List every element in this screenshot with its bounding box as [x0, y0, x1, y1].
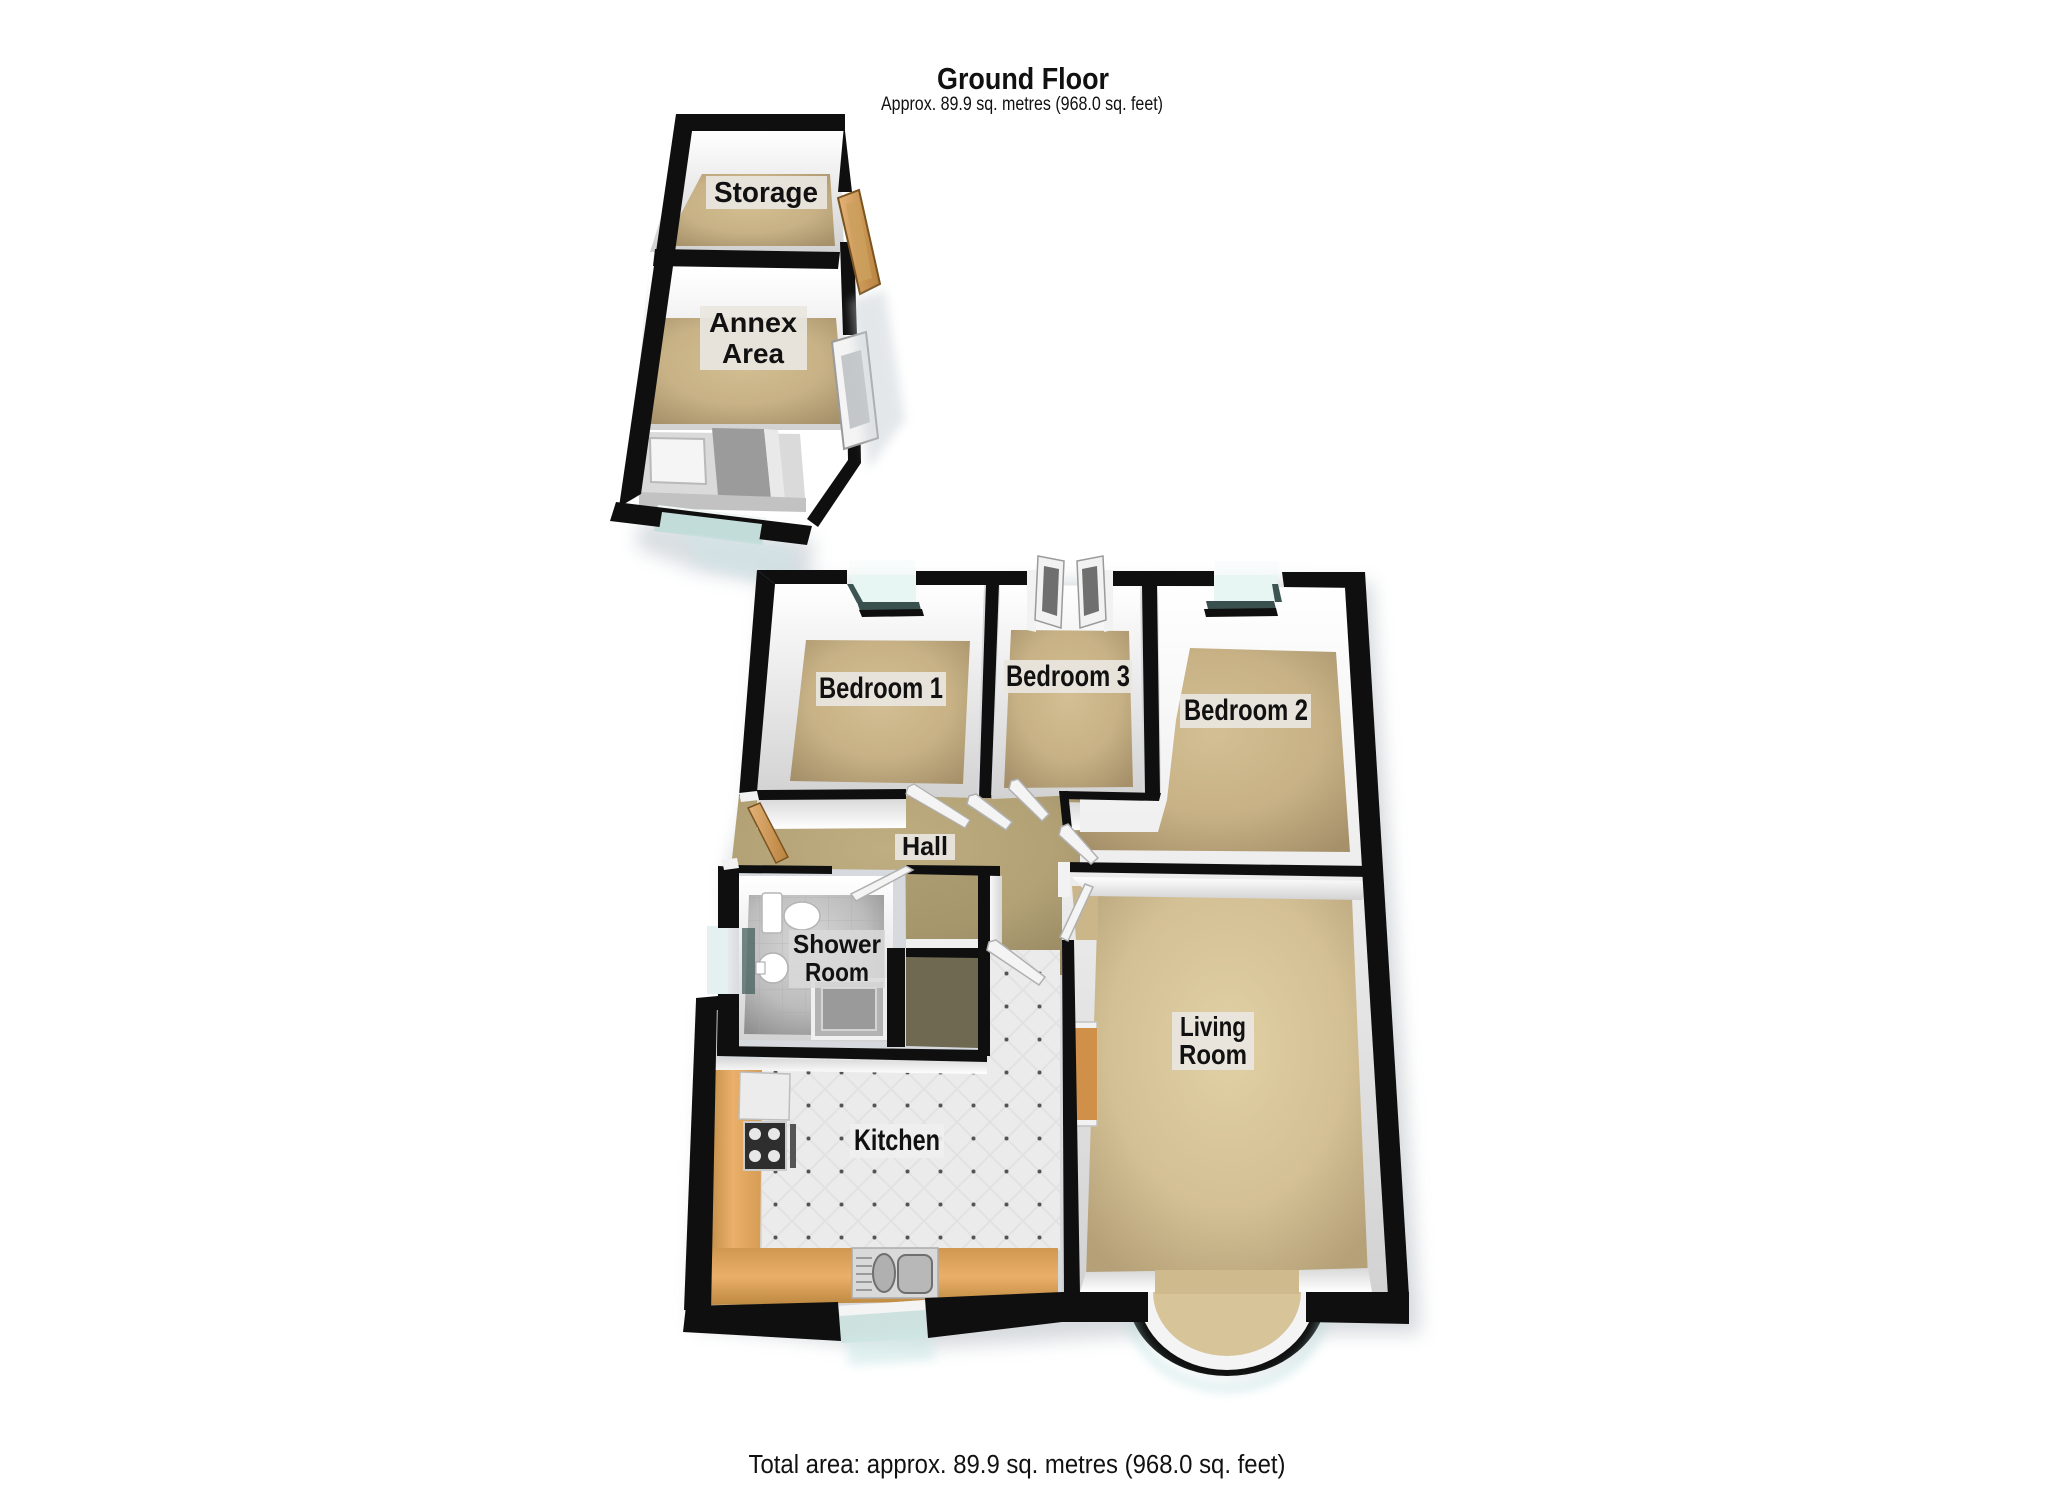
svg-text:Area: Area	[722, 338, 784, 369]
svg-text:Bedroom 2: Bedroom 2	[1184, 694, 1308, 727]
svg-text:Ground Floor: Ground Floor	[937, 61, 1109, 96]
svg-text:Kitchen: Kitchen	[854, 1124, 940, 1157]
svg-text:Hall: Hall	[902, 831, 948, 861]
svg-text:Room: Room	[805, 957, 869, 987]
svg-text:Annex: Annex	[709, 307, 797, 338]
svg-text:Approx. 89.9 sq. metres (968.0: Approx. 89.9 sq. metres (968.0 sq. feet)	[881, 93, 1163, 115]
svg-text:Bedroom 1: Bedroom 1	[819, 672, 943, 705]
svg-text:Shower: Shower	[793, 929, 881, 959]
svg-text:Bedroom 3: Bedroom 3	[1006, 660, 1130, 693]
svg-text:Room: Room	[1179, 1039, 1247, 1070]
svg-text:Total area: approx. 89.9 sq. m: Total area: approx. 89.9 sq. metres (968…	[749, 1451, 1286, 1479]
svg-text:Storage: Storage	[714, 177, 818, 209]
svg-text:Living: Living	[1180, 1011, 1246, 1042]
